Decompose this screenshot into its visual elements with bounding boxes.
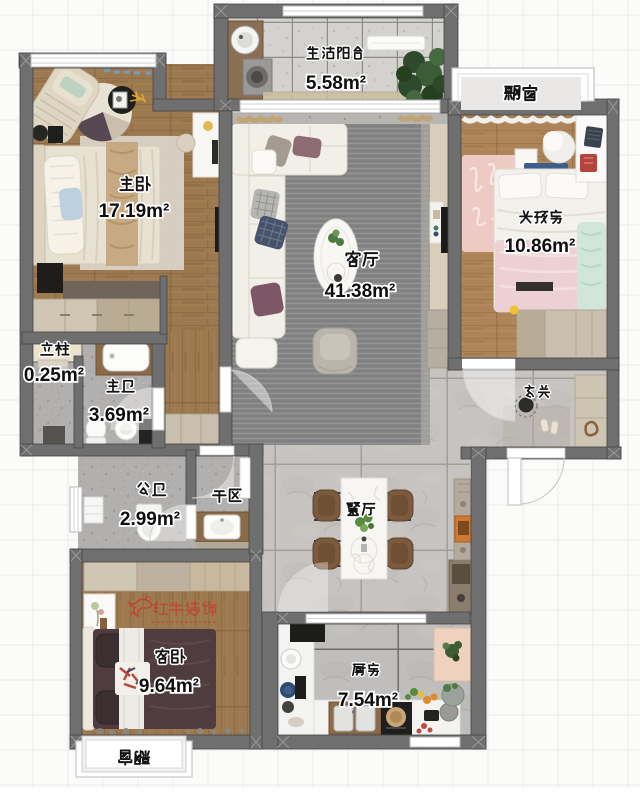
svg-text:0.25m²: 0.25m² [24,365,84,386]
svg-text:41.38m²: 41.38m² [325,281,396,302]
svg-text:10.86m²: 10.86m² [505,236,576,257]
svg-text:17.19m²: 17.19m² [99,201,170,222]
svg-text:3.69m²: 3.69m² [89,405,149,426]
svg-text:5.58m²: 5.58m² [306,73,366,94]
svg-text:7.54m²: 7.54m² [338,690,398,711]
svg-text:2.99m²: 2.99m² [120,509,180,530]
svg-text:9.64m²: 9.64m² [139,676,199,697]
